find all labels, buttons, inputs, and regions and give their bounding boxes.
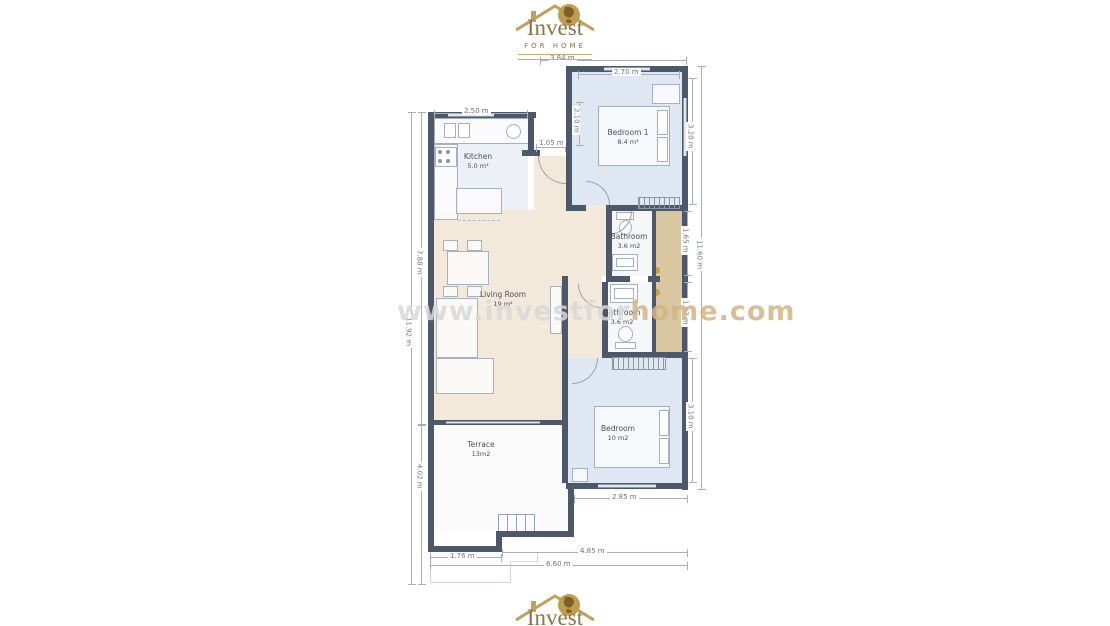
kitchen-island-icon bbox=[456, 188, 502, 214]
sofa-chaise-icon bbox=[436, 358, 494, 394]
room-label-bathroom1: Bathroom 3.6 m2 bbox=[599, 232, 659, 250]
window-terrace-slider bbox=[446, 421, 540, 424]
room-label-bedroom1: Bedroom 1 8.4 m² bbox=[598, 128, 658, 146]
dim-label-bottom-total: 6.60 m bbox=[544, 560, 573, 568]
logo-wordmark: Invest bbox=[510, 605, 600, 626]
room-name: Bathroom bbox=[599, 232, 659, 241]
chair-icon bbox=[443, 240, 458, 251]
dim-label-entry-width: 1.05 m bbox=[537, 139, 566, 147]
dim-label-bedroom2-height: 3.10 m bbox=[686, 402, 694, 431]
dimension-line bbox=[421, 425, 422, 585]
nightstand-icon bbox=[572, 468, 588, 482]
burner-icon bbox=[438, 150, 442, 154]
dim-label-terrace-height: 4.02 m bbox=[415, 462, 423, 491]
pillow-icon bbox=[659, 438, 669, 464]
dim-label-bedroom2-width: 2.85 m bbox=[610, 493, 639, 501]
dim-label-bottom-left: 1.76 m bbox=[448, 552, 477, 560]
room-area: 13m2 bbox=[451, 450, 511, 458]
toilet-tank-icon bbox=[615, 342, 636, 349]
wall-left-outer bbox=[428, 112, 434, 552]
dim-label-kitchen-width: 2.50 m bbox=[462, 107, 491, 115]
room-name: Terrace bbox=[451, 440, 511, 449]
closet-strip-floor bbox=[656, 211, 682, 358]
island-dash-icon bbox=[458, 220, 500, 221]
room-area: 8.4 m² bbox=[598, 138, 658, 146]
watermark-part1: www.investfor bbox=[397, 296, 630, 327]
invest-for-home-logo-top: Invest FOR HOME bbox=[510, 2, 600, 64]
dim-label-left-upper: 7.88 m bbox=[415, 248, 423, 277]
wall-bedroom1-bottom-left bbox=[566, 205, 586, 211]
dimension-line bbox=[701, 66, 702, 490]
room-label-bedroom2: Bedroom 10 m2 bbox=[588, 424, 648, 442]
room-name: Kitchen bbox=[448, 152, 508, 161]
wall-bath-divider-left bbox=[606, 276, 630, 282]
logo-divider-lines bbox=[518, 54, 592, 60]
room-area: 3.6 m2 bbox=[599, 242, 659, 250]
dining-table-icon bbox=[447, 251, 489, 285]
chair-icon bbox=[467, 240, 482, 251]
terrace-step-outline-2 bbox=[510, 552, 538, 562]
toilet-bowl-icon bbox=[618, 326, 633, 342]
wardrobe-icon bbox=[652, 84, 680, 104]
radiator-icon bbox=[638, 197, 680, 209]
dim-label-bedroom1-width: 2.70 m bbox=[612, 68, 641, 76]
pillow-icon bbox=[657, 137, 668, 162]
wall-bedroom1-left bbox=[566, 66, 572, 211]
room-label-terrace: Terrace 13m2 bbox=[451, 440, 511, 458]
room-area: 10 m2 bbox=[588, 434, 648, 442]
radiator-icon bbox=[612, 357, 666, 370]
window-bedroom2 bbox=[598, 484, 656, 488]
floorplan-page: Invest FOR HOME bbox=[0, 0, 1110, 626]
wall-kitchen-right bbox=[528, 112, 534, 154]
wall-step-horizontal bbox=[496, 531, 574, 537]
dimension-line bbox=[411, 112, 412, 585]
room-label-kitchen: Kitchen 5.0 m² bbox=[448, 152, 508, 170]
dim-label-bottom-right: 4.85 m bbox=[578, 547, 607, 555]
sink-basin-icon bbox=[458, 123, 470, 138]
burner-icon bbox=[438, 159, 442, 163]
dim-label-bedroom1-height: 3.20 m bbox=[686, 122, 694, 151]
dim-label-bathroom1-height: 1.65 m bbox=[681, 226, 689, 255]
invest-for-home-logo-bottom: Invest FOR HOME bbox=[510, 592, 600, 626]
sink-basin-icon bbox=[444, 123, 456, 138]
watermark-text: www.investforhome.com bbox=[397, 296, 796, 327]
watermark-part2: home.com bbox=[630, 296, 795, 327]
washbasin-inner-icon bbox=[616, 258, 634, 267]
hob-icon bbox=[506, 124, 521, 139]
dim-label-entry-height: 2.10 m bbox=[572, 106, 580, 135]
room-name: Bedroom 1 bbox=[598, 128, 658, 137]
dim-label-right-total: 11.60 m bbox=[695, 238, 703, 271]
logo-subtitle: FOR HOME bbox=[510, 42, 600, 50]
wall-terrace-right bbox=[568, 483, 574, 537]
pillow-icon bbox=[657, 110, 668, 135]
room-name: Bedroom bbox=[588, 424, 648, 433]
room-area: 5.0 m² bbox=[448, 162, 508, 170]
logo-wordmark: Invest bbox=[510, 15, 600, 41]
pillow-icon bbox=[659, 410, 669, 436]
